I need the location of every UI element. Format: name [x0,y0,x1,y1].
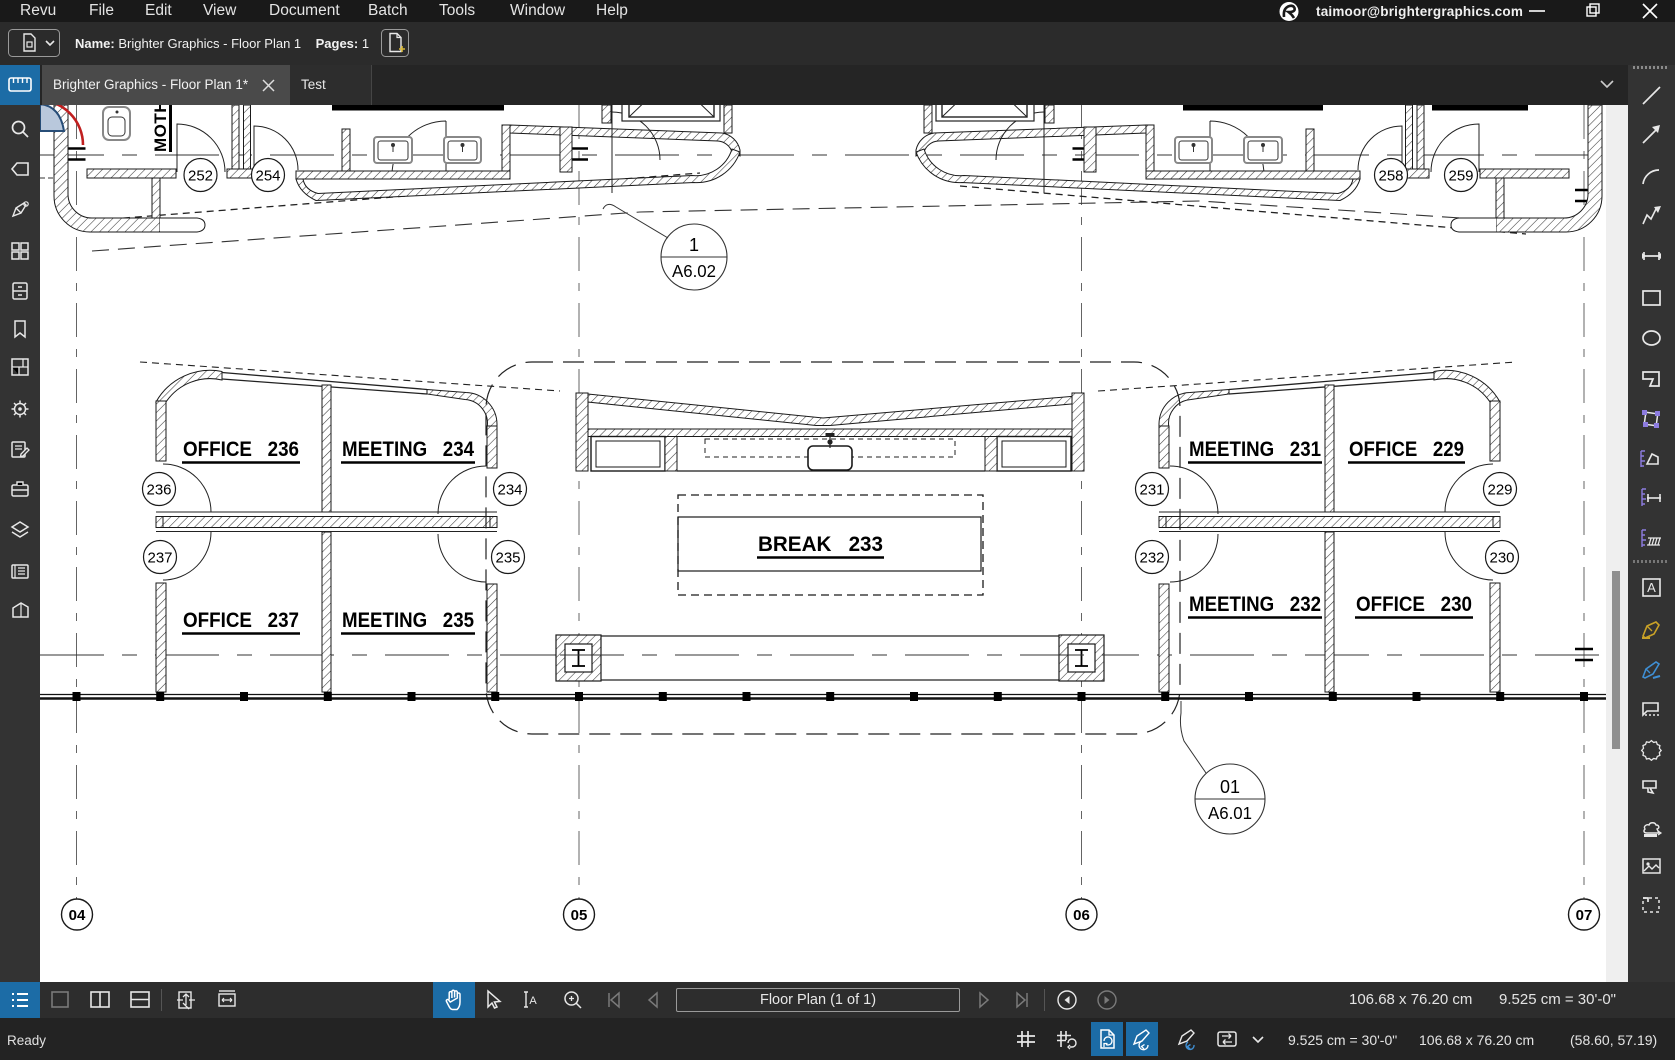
svg-text:MEETING 231: MEETING 231 [1189,438,1321,461]
svg-text:252: 252 [188,168,213,185]
svg-text:229: 229 [1487,482,1512,499]
svg-text:258: 258 [1378,168,1403,185]
svg-text:OFFICE 230: OFFICE 230 [1356,593,1472,616]
svg-text:231: 231 [1139,482,1164,499]
svg-text:04: 04 [69,907,86,924]
svg-text:06: 06 [1073,907,1090,924]
svg-text:259: 259 [1448,168,1473,185]
svg-text:OFFICE 229: OFFICE 229 [1349,438,1464,461]
svg-text:BREAK 233: BREAK 233 [758,533,883,556]
svg-text:236: 236 [146,482,171,499]
svg-text:234: 234 [497,482,522,499]
svg-text:MOTH: MOTH [151,105,170,152]
svg-text:01: 01 [1220,777,1240,797]
svg-text:230: 230 [1489,550,1514,567]
svg-text:05: 05 [571,907,588,924]
svg-text:1: 1 [689,235,699,255]
svg-text:232: 232 [1139,550,1164,567]
svg-text:237: 237 [147,550,172,567]
svg-text:254: 254 [255,168,280,185]
svg-text:MEETING 234: MEETING 234 [342,438,474,461]
svg-text:A6.01: A6.01 [1208,803,1252,823]
svg-text:MEETING 232: MEETING 232 [1189,593,1321,616]
svg-text:A: A [1647,580,1656,595]
svg-text:A6.02: A6.02 [672,261,716,281]
svg-text:07: 07 [1576,907,1593,924]
svg-text:OFFICE 237: OFFICE 237 [183,609,299,632]
svg-text:MEETING 235: MEETING 235 [342,609,474,632]
svg-text:235: 235 [495,550,520,567]
svg-text:A: A [529,995,537,1007]
svg-text:OFFICE 236: OFFICE 236 [183,438,299,461]
